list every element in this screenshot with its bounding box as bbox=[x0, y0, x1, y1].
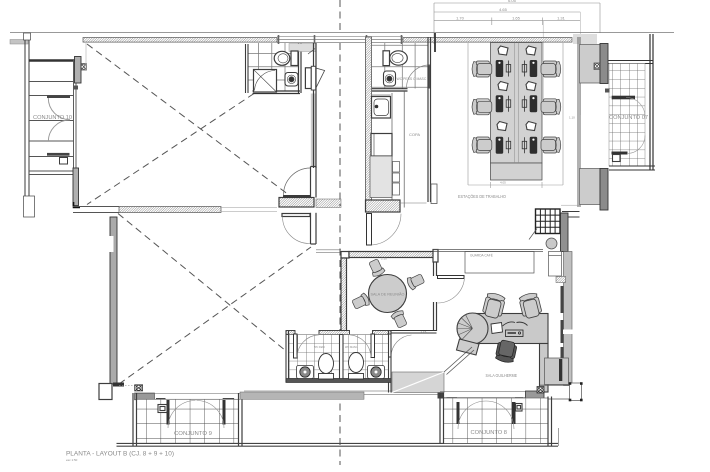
svg-text:SALA DE REUNIÃO: SALA DE REUNIÃO bbox=[371, 292, 405, 297]
svg-text:CONJUNTO 07: CONJUNTO 07 bbox=[609, 115, 648, 121]
svg-text:WC FEM.: WC FEM. bbox=[314, 345, 326, 349]
svg-text:SALA GUILHERME: SALA GUILHERME bbox=[486, 373, 518, 378]
svg-text:6.05: 6.05 bbox=[508, 0, 517, 3]
svg-text:CONJUNTO 9: CONJUNTO 9 bbox=[174, 431, 212, 437]
svg-text:PLANTA - LAYOUT B (CJ. 8 + 9 +: PLANTA - LAYOUT B (CJ. 8 + 9 + 10) bbox=[66, 452, 174, 458]
svg-text:GUARDA CAFÉ: GUARDA CAFÉ bbox=[470, 253, 493, 258]
svg-text:4.65: 4.65 bbox=[499, 7, 508, 12]
svg-text:CONJUNTO 10: CONJUNTO 10 bbox=[33, 115, 72, 121]
svg-text:1.10: 1.10 bbox=[569, 116, 575, 120]
svg-text:WC PESS C MASC: WC PESS C MASC bbox=[397, 77, 427, 81]
svg-text:1.65: 1.65 bbox=[512, 16, 521, 21]
svg-text:CONJUNTO 8: CONJUNTO 8 bbox=[471, 430, 508, 436]
svg-text:1.31: 1.31 bbox=[557, 16, 566, 21]
svg-text:2.10: 2.10 bbox=[381, 257, 387, 261]
svg-text:COPA: COPA bbox=[409, 132, 420, 137]
svg-text:esc 1:50: esc 1:50 bbox=[66, 458, 78, 462]
svg-text:4.05: 4.05 bbox=[500, 181, 506, 185]
svg-text:ESTAÇÕES DE TRABALHO: ESTAÇÕES DE TRABALHO bbox=[458, 194, 506, 199]
svg-text:1.70: 1.70 bbox=[456, 16, 465, 21]
svg-text:WC MASC.: WC MASC. bbox=[345, 345, 359, 349]
